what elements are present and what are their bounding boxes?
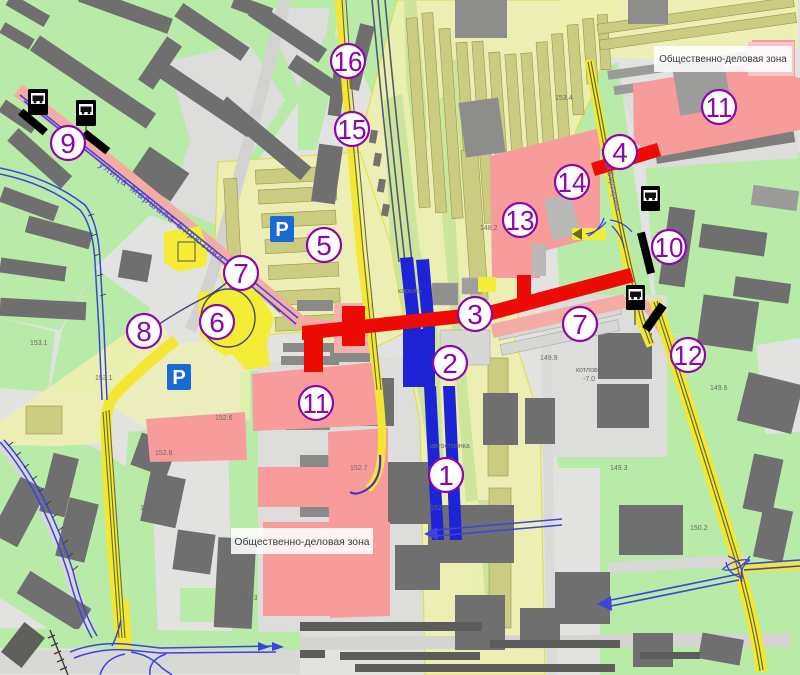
svg-text:153.1: 153.1 bbox=[30, 340, 48, 347]
svg-text:11: 11 bbox=[706, 92, 733, 123]
svg-text:P: P bbox=[172, 367, 185, 389]
svg-text:149.9: 149.9 bbox=[540, 355, 558, 362]
svg-text:3: 3 bbox=[467, 299, 483, 330]
svg-text:148.2: 148.2 bbox=[480, 225, 498, 232]
svg-text:Общественно-деловая зона: Общественно-деловая зона bbox=[659, 54, 787, 65]
svg-text:149.6: 149.6 bbox=[710, 385, 728, 392]
svg-text:11: 11 bbox=[303, 388, 330, 419]
svg-text:15: 15 bbox=[338, 114, 367, 145]
svg-text:4: 4 bbox=[612, 137, 628, 168]
svg-text:153.4: 153.4 bbox=[555, 95, 573, 102]
svg-text:8: 8 bbox=[136, 316, 152, 347]
svg-text:6: 6 bbox=[209, 307, 225, 338]
svg-text:P: P bbox=[275, 219, 288, 241]
svg-text:14: 14 bbox=[558, 167, 587, 198]
svg-text:5: 5 bbox=[316, 230, 332, 261]
svg-text:12: 12 bbox=[674, 340, 703, 371]
svg-text:152.5: 152.5 bbox=[430, 505, 448, 512]
svg-text:149.3: 149.3 bbox=[610, 465, 628, 472]
svg-text:Общественно-деловая зона: Общественно-деловая зона bbox=[234, 536, 369, 548]
svg-text:13: 13 bbox=[506, 205, 535, 236]
svg-text:16: 16 bbox=[334, 46, 363, 77]
svg-text:152.8: 152.8 bbox=[155, 450, 173, 457]
svg-text:-7.0: -7.0 bbox=[583, 376, 595, 383]
svg-text:9: 9 bbox=[60, 128, 76, 159]
svg-text:котлован: котлован bbox=[576, 367, 606, 374]
svg-text:152.3: 152.3 bbox=[240, 595, 258, 602]
svg-text:автостоянка: автостоянка bbox=[430, 443, 470, 450]
svg-text:152.7: 152.7 bbox=[350, 465, 368, 472]
svg-text:2: 2 bbox=[442, 348, 458, 379]
svg-text:152.9: 152.9 bbox=[140, 505, 158, 512]
svg-text:152.6: 152.6 bbox=[215, 415, 233, 422]
svg-text:150.2: 150.2 bbox=[690, 525, 708, 532]
svg-text:7: 7 bbox=[572, 309, 588, 340]
svg-text:карыто: карыто bbox=[398, 288, 421, 295]
svg-text:151.8: 151.8 bbox=[410, 575, 428, 582]
svg-text:1: 1 bbox=[438, 460, 454, 491]
svg-text:7: 7 bbox=[233, 258, 249, 289]
svg-text:153.1: 153.1 bbox=[95, 375, 113, 382]
svg-text:10: 10 bbox=[655, 232, 684, 263]
